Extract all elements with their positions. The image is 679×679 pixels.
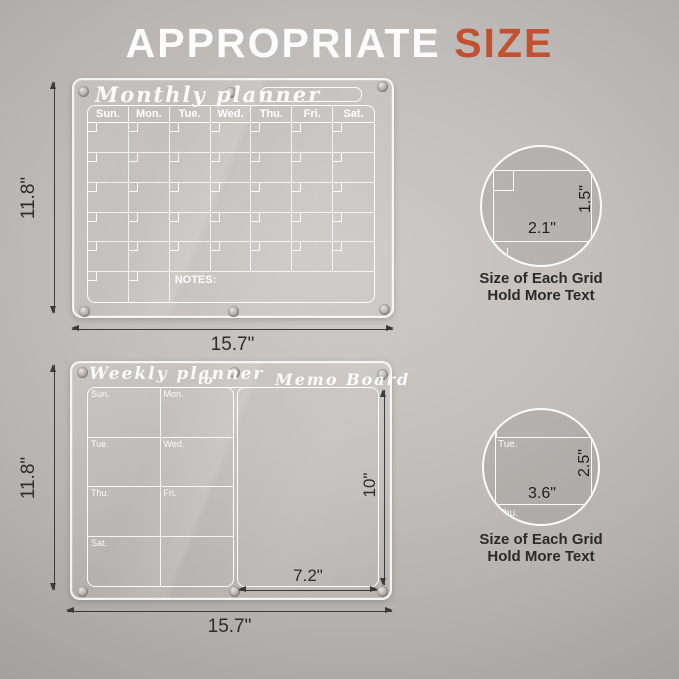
memo-width-dimension-line — [239, 590, 377, 591]
date-square — [251, 213, 260, 222]
date-square — [88, 153, 97, 162]
weekly-cell-detail-circle: Tue. We Thu. 3.6" 2.5" — [482, 408, 600, 526]
weekly-day-label: Fri. — [164, 488, 177, 498]
monthly-cell — [170, 213, 211, 243]
memo-board-area — [237, 387, 379, 587]
date-square — [129, 242, 138, 251]
date-square — [88, 272, 97, 281]
monthly-cell — [170, 183, 211, 213]
date-square — [251, 123, 260, 132]
monthly-cell — [211, 123, 252, 153]
weekly-height-dimension-line — [54, 365, 55, 590]
monthly-height-dimension-label: 11.8" — [18, 175, 40, 221]
monthly-width-dimension-label: 15.7" — [200, 334, 265, 356]
date-square — [129, 183, 138, 192]
date-square — [251, 153, 260, 162]
monthly-day-header: Mon. — [129, 106, 170, 123]
monthly-cell — [333, 153, 374, 183]
date-square — [211, 242, 220, 251]
monthly-cell — [333, 242, 374, 272]
monthly-cell — [251, 213, 292, 243]
weekly-cell-height-label: 2.5" — [576, 443, 594, 483]
date-square — [88, 213, 97, 222]
date-square — [251, 183, 260, 192]
monthly-grid: Sun.Mon.Tue.Wed.Thu.Fri.Sat.NOTES: — [87, 105, 375, 303]
date-square — [211, 123, 220, 132]
weekly-day-label: Sat. — [91, 538, 107, 548]
monthly-cell — [251, 153, 292, 183]
screw-icon — [377, 81, 388, 92]
weekly-width-dimension-label: 15.7" — [197, 616, 262, 638]
monthly-planner-board: Monthly planner Sun.Mon.Tue.Wed.Thu.Fri.… — [72, 78, 394, 318]
monthly-day-header: Sun. — [88, 106, 129, 123]
notes-label: NOTES: — [175, 274, 217, 286]
monthly-cell — [170, 123, 211, 153]
monthly-cell — [211, 183, 252, 213]
screw-icon — [77, 586, 88, 597]
date-square — [88, 183, 97, 192]
caption-line: Hold More Text — [455, 287, 627, 304]
caption-line: Hold More Text — [455, 548, 627, 565]
date-square — [211, 213, 220, 222]
caption-line: Size of Each Grid — [455, 531, 627, 548]
monthly-day-header: Fri. — [292, 106, 333, 123]
memo-width-dimension-label: 7.2" — [278, 566, 338, 586]
screw-icon — [377, 586, 388, 597]
weekly-day-label: Sun. — [91, 389, 110, 399]
weekly-day-label: Wed. — [164, 439, 185, 449]
date-square — [170, 242, 179, 251]
date-square — [129, 123, 138, 132]
monthly-cell — [88, 213, 129, 243]
monthly-width-dimension-line — [72, 329, 393, 330]
monthly-cell — [292, 153, 333, 183]
memo-height-dimension-label: 10" — [360, 465, 380, 505]
date-square — [129, 153, 138, 162]
date-square — [333, 183, 342, 192]
detail-gridline — [484, 505, 495, 507]
monthly-cell — [211, 242, 252, 272]
monthly-cell — [170, 242, 211, 272]
monthly-cell — [170, 153, 211, 183]
monthly-cell — [251, 183, 292, 213]
weekly-day-label: Tue. — [91, 439, 109, 449]
monthly-cell-detail-circle: 2.1" 1.5" — [480, 145, 602, 267]
weekly-cell: Fri. — [161, 487, 234, 537]
weekly-cell: Sun. — [88, 388, 161, 438]
monthly-cell-width-label: 2.1" — [507, 220, 577, 238]
date-square — [170, 153, 179, 162]
monthly-cell — [88, 123, 129, 153]
weekly-day-label: Thu. — [91, 488, 109, 498]
monthly-day-header: Sat. — [333, 106, 374, 123]
weekly-height-dimension-label: 11.8" — [18, 455, 40, 501]
screw-icon — [379, 304, 390, 315]
monthly-cell — [129, 123, 170, 153]
date-square — [333, 153, 342, 162]
screw-icon — [78, 86, 89, 97]
weekly-cell: Wed. — [161, 438, 234, 488]
date-square — [333, 242, 342, 251]
monthly-cell — [292, 242, 333, 272]
screw-icon — [228, 306, 239, 317]
detail-day-label: We — [595, 439, 600, 450]
monthly-cell — [88, 183, 129, 213]
month-name-box — [260, 87, 362, 102]
monthly-day-header: Tue. — [170, 106, 211, 123]
caption-line: Size of Each Grid — [455, 270, 627, 287]
date-square — [211, 183, 220, 192]
detail-day-label: Tue. — [498, 439, 518, 450]
title-word-appropriate: APPROPRIATE — [126, 20, 441, 66]
monthly-cell — [292, 183, 333, 213]
screw-icon — [77, 367, 88, 378]
detail-date-square — [494, 171, 514, 191]
monthly-cell — [129, 213, 170, 243]
weekly-cell: Thu. — [88, 487, 161, 537]
date-square — [129, 272, 138, 281]
page-title: APPROPRIATE SIZE — [0, 20, 679, 67]
screw-icon — [79, 306, 90, 317]
date-range-to-label: to — [198, 373, 213, 388]
monthly-detail-caption: Size of Each Grid Hold More Text — [455, 270, 627, 304]
date-square — [211, 153, 220, 162]
memo-height-dimension-line — [384, 390, 385, 585]
monthly-cell — [251, 242, 292, 272]
monthly-cell-height-label: 1.5" — [577, 179, 595, 219]
detail-date-square — [494, 248, 508, 262]
notes-cell: NOTES: — [170, 272, 374, 302]
detail-gridline — [591, 416, 593, 437]
detail-gridline — [482, 170, 493, 172]
date-square — [129, 213, 138, 222]
weekly-detail-caption: Size of Each Grid Hold More Text — [455, 531, 627, 565]
monthly-cell — [211, 213, 252, 243]
date-square — [333, 123, 342, 132]
weekly-width-dimension-line — [67, 611, 392, 612]
monthly-cell — [333, 183, 374, 213]
monthly-cell — [292, 123, 333, 153]
date-square — [292, 213, 301, 222]
detail-gridline — [600, 170, 602, 242]
date-square — [292, 123, 301, 132]
detail-gridline — [495, 505, 497, 526]
weekly-cell: Tue. — [88, 438, 161, 488]
weekly-cell-width-label: 3.6" — [507, 485, 577, 503]
date-square — [88, 242, 97, 251]
date-square — [292, 153, 301, 162]
weekly-day-label: Mon. — [164, 389, 184, 399]
date-range-row: to — [167, 373, 244, 388]
monthly-day-header: Thu. — [251, 106, 292, 123]
detail-date-square — [601, 171, 602, 189]
date-square — [292, 242, 301, 251]
monthly-cell — [129, 272, 170, 302]
date-square — [292, 183, 301, 192]
weekly-cell — [161, 537, 234, 587]
date-square — [251, 242, 260, 251]
date-square — [170, 123, 179, 132]
monthly-day-header: Wed. — [211, 106, 252, 123]
monthly-height-dimension-line — [54, 82, 55, 313]
date-square — [88, 123, 97, 132]
date-square — [170, 183, 179, 192]
weekly-planner-board: Weekly planner to Memo Board Sun.Mon.Tue… — [70, 361, 392, 600]
monthly-cell — [333, 213, 374, 243]
weekly-grid: Sun.Mon.Tue.Wed.Thu.Fri.Sat. — [87, 387, 234, 587]
detail-gridline — [482, 242, 493, 244]
monthly-cell — [88, 272, 129, 302]
weekly-cell: Sat. — [88, 537, 161, 587]
detail-day-label: Thu. — [498, 508, 518, 519]
monthly-cell — [129, 183, 170, 213]
date-square — [333, 213, 342, 222]
monthly-cell — [129, 242, 170, 272]
monthly-cell — [88, 153, 129, 183]
monthly-cell — [129, 153, 170, 183]
monthly-cell — [251, 123, 292, 153]
monthly-cell — [333, 123, 374, 153]
monthly-cell — [292, 213, 333, 243]
monthly-cell — [211, 153, 252, 183]
weekly-cell: Mon. — [161, 388, 234, 438]
monthly-cell — [88, 242, 129, 272]
product-size-infographic: APPROPRIATE SIZE Monthly planner Sun.Mon… — [0, 0, 679, 679]
title-word-size: SIZE — [454, 20, 553, 66]
detail-gridline — [495, 416, 497, 437]
date-square — [170, 213, 179, 222]
